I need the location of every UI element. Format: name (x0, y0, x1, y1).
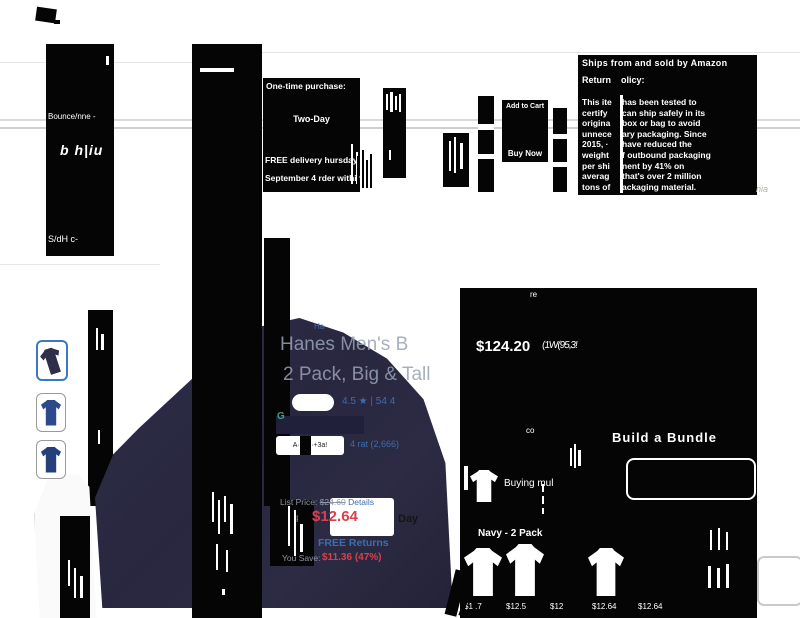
scan-artifact (96, 328, 98, 350)
scan-artifact (454, 137, 456, 173)
scan-artifact (553, 162, 567, 167)
buying-multiple-text: Buying mul (504, 478, 553, 489)
outlined-box (757, 556, 800, 606)
artifact-text: co (526, 426, 534, 435)
scan-artifact (578, 450, 581, 466)
swatch-price: $12.64 (638, 602, 662, 611)
product-title-line1: Hanes Men's B (280, 334, 408, 356)
scan-artifact (216, 544, 218, 570)
scan-artifact (478, 124, 494, 130)
tshirt-icon (41, 447, 61, 473)
scan-artifact-divider (620, 95, 623, 193)
artifact-text: S/dH c- (48, 234, 78, 244)
scan-artifact (98, 430, 100, 444)
scan-artifact (570, 448, 572, 466)
scan-artifact (460, 143, 463, 169)
scan-artifact (542, 496, 544, 504)
build-bundle-button[interactable] (626, 458, 756, 500)
artifact-text: Ha (314, 322, 324, 331)
scan-artifact (80, 576, 83, 598)
scan-artifact (574, 444, 576, 468)
packaging-paragraph: This itecertify originaunnece 2015, ·wei… (582, 97, 752, 192)
buy-panel: re $124.20 (1W(95,3! co Build a Bundle B… (460, 288, 757, 618)
scan-artifact (54, 20, 60, 24)
color-swatch[interactable] (464, 548, 502, 596)
scan-artifact-column (192, 44, 262, 618)
list-price-row: List Price: $24.60 Details (280, 497, 374, 507)
scan-artifact (218, 500, 220, 534)
variant-label: Navy - 2 Pack (478, 528, 543, 539)
color-swatch[interactable] (588, 548, 624, 596)
build-bundle-title: Build a Bundle (612, 430, 717, 445)
scan-artifact (101, 334, 104, 350)
one-time-purchase-option[interactable]: One-time purchase: Two-Day FREE delivery… (263, 78, 360, 192)
ratings-link[interactable]: 4.5 ★ | 54 4 (342, 396, 395, 407)
scan-artifact (717, 568, 720, 588)
delivery-line: September 4 rder within (265, 173, 362, 183)
scan-artifact (395, 96, 397, 110)
amazon-product-page-scan: Bounce/nne - b h|iu S/dH c- One-t (0, 0, 800, 618)
artifact-text: G (277, 411, 285, 422)
scan-artifact-block: Bounce/nne - b h|iu S/dH c- (46, 44, 114, 256)
list-price-value: $24.60 (320, 497, 346, 507)
scan-artifact-block (553, 108, 567, 192)
scan-artifact (542, 508, 544, 514)
purchase-option-title: One-time purchase: (266, 81, 346, 91)
scan-artifact (389, 150, 391, 160)
price-value: $12.64 (312, 508, 358, 525)
scan-artifact (449, 141, 451, 171)
handwriting-note: nia (756, 184, 768, 194)
scan-artifact (222, 589, 225, 595)
panel-price: $124.20 (476, 338, 530, 355)
you-save-value: $11.36 (47%) (322, 552, 382, 563)
badge-link[interactable]: 4 rat (2,666) (350, 439, 399, 449)
delivery-line: FREE delivery hursday, (265, 155, 359, 165)
scan-artifact (298, 512, 308, 524)
scan-artifact (399, 94, 401, 112)
shipping-speed-label: Two-Day (263, 114, 360, 124)
scan-artifact (708, 566, 711, 588)
thumbnail[interactable] (36, 440, 66, 479)
return-policy-label: Returnolicy: (582, 75, 645, 85)
artifact-text: Bounce/nne - (48, 112, 96, 121)
scan-artifact-block (383, 88, 406, 178)
scan-artifact (351, 144, 353, 184)
cart-actions: Add to Cart Buy Now (502, 100, 548, 162)
scan-artifact (386, 94, 388, 110)
tshirt-icon (38, 345, 65, 376)
scan-artifact (726, 564, 729, 588)
scan-artifact (357, 150, 373, 194)
scan-artifact (726, 532, 728, 550)
swatch-price: $12 (550, 602, 563, 611)
scan-artifact (212, 492, 214, 522)
list-price-label: List Price: (280, 497, 317, 507)
thumbnail-selected[interactable] (36, 340, 68, 381)
scan-artifact-block (60, 516, 90, 618)
divider (230, 52, 800, 53)
color-swatch[interactable] (506, 544, 544, 596)
thumbnail[interactable] (36, 393, 66, 432)
add-to-cart-button[interactable]: Add to Cart (502, 103, 548, 110)
scan-artifact (68, 560, 70, 586)
artifact-text: (1W(95,3! (541, 340, 577, 351)
tshirt-icon (41, 400, 61, 426)
ships-from-panel: Ships from and sold by Amazon Returnolic… (578, 55, 757, 195)
you-save-label: You Save: (282, 553, 320, 563)
scan-artifact (300, 436, 311, 455)
scan-artifact (478, 154, 494, 159)
details-link[interactable]: Details (348, 497, 374, 507)
scan-artifact (553, 134, 567, 139)
scan-artifact (542, 484, 544, 492)
tshirt-icon (470, 470, 498, 502)
divider (0, 264, 160, 265)
free-returns-link[interactable]: FREE Returns (318, 537, 389, 549)
artifact-text: re (530, 290, 537, 299)
artifact-text: b h|iu (60, 142, 103, 158)
swatch-price: $12.64 (592, 602, 616, 611)
day-text: Day (398, 513, 418, 525)
swatch-price: $12.5 (506, 602, 526, 611)
scan-artifact-band (276, 416, 364, 434)
scan-artifact (200, 68, 234, 72)
scan-artifact (230, 504, 233, 534)
buy-now-button[interactable]: Buy Now (502, 149, 548, 158)
scan-artifact (464, 466, 468, 490)
scan-artifact (718, 528, 720, 550)
ships-from-text: Ships from and sold by Amazon (582, 58, 727, 68)
rating-pill (292, 394, 334, 411)
product-title-line2: 2 Pack, Big & Tall (283, 364, 431, 386)
scan-artifact (288, 506, 290, 546)
scan-artifact (224, 496, 226, 522)
scan-artifact (710, 530, 712, 550)
scan-artifact (226, 550, 228, 572)
scan-artifact (106, 56, 109, 65)
scan-artifact-block (478, 96, 494, 192)
scan-artifact-block (443, 133, 469, 187)
scan-artifact (390, 92, 393, 112)
scan-artifact (74, 568, 76, 598)
